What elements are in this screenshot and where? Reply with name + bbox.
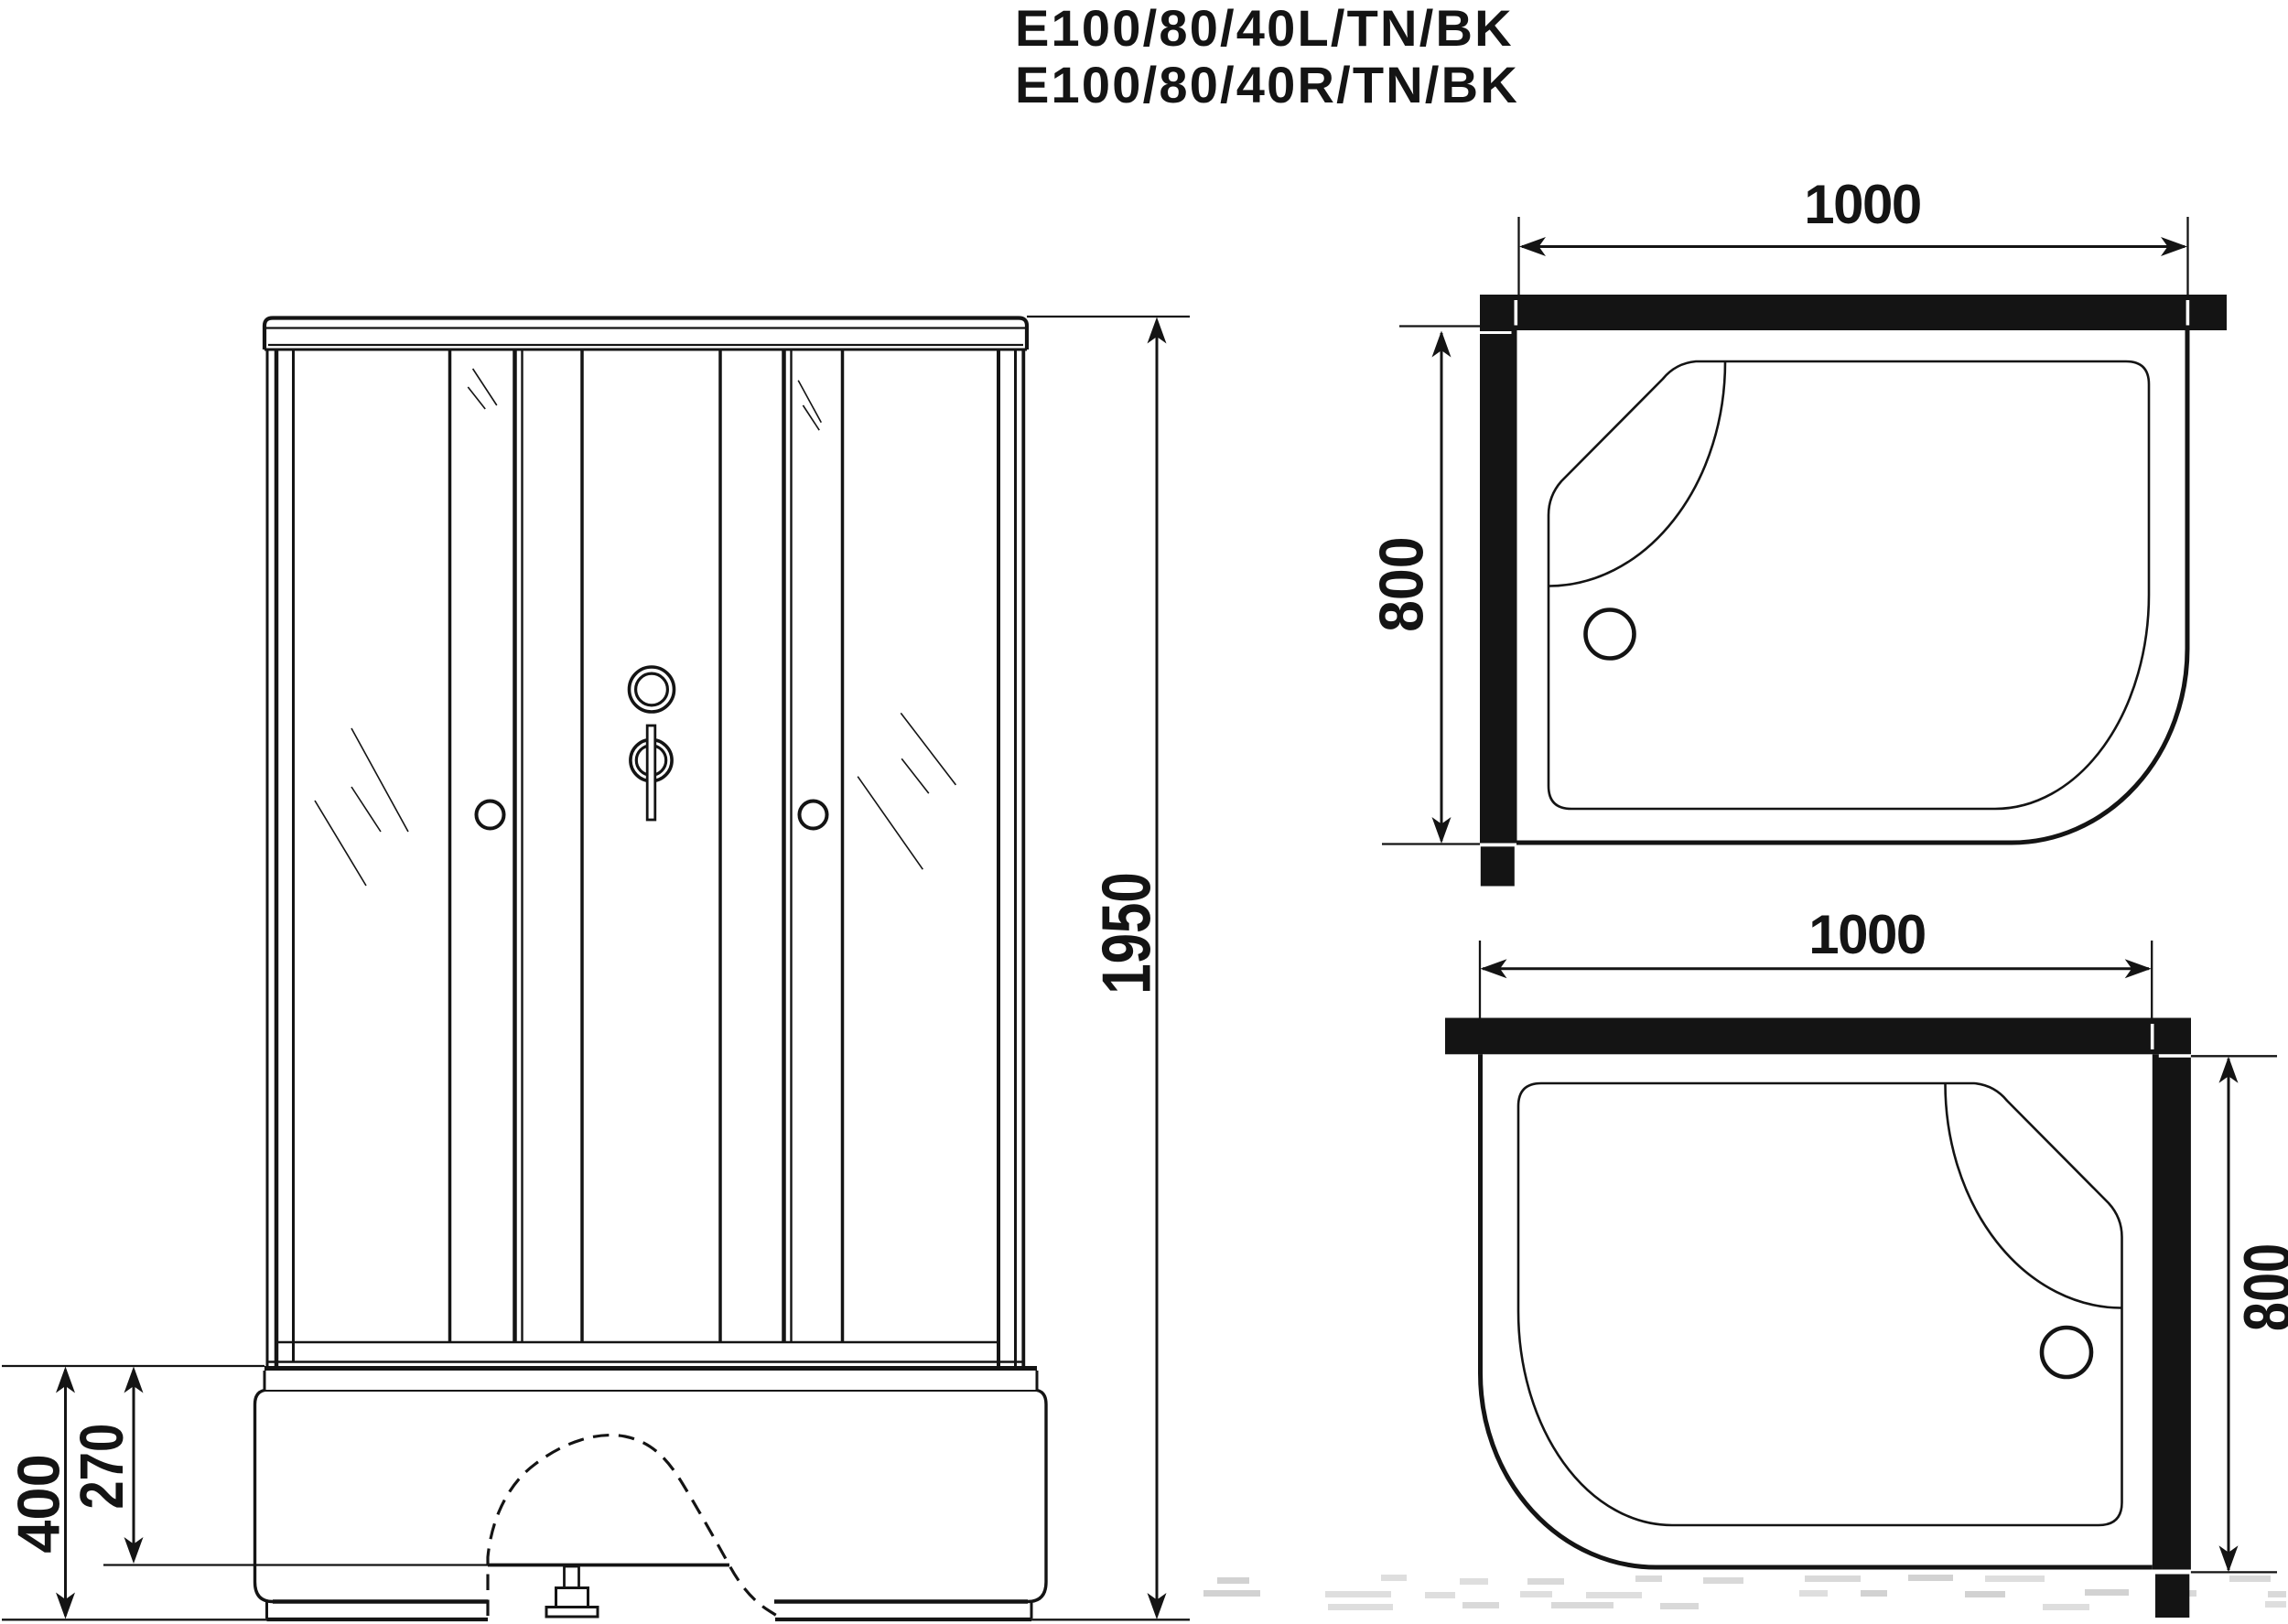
svg-text:1000: 1000 — [1808, 904, 1925, 965]
svg-text:1000: 1000 — [1804, 174, 1920, 235]
svg-text:E100/80/40L/TN/BK: E100/80/40L/TN/BK — [1015, 0, 1514, 57]
svg-text:1950: 1950 — [1089, 872, 1165, 994]
svg-text:800: 800 — [2229, 1243, 2288, 1331]
svg-text:800: 800 — [1366, 537, 1436, 632]
svg-text:270: 270 — [68, 1424, 136, 1510]
svg-text:400: 400 — [5, 1454, 72, 1553]
svg-text:E100/80/40R/TN/BK: E100/80/40R/TN/BK — [1015, 56, 1519, 113]
